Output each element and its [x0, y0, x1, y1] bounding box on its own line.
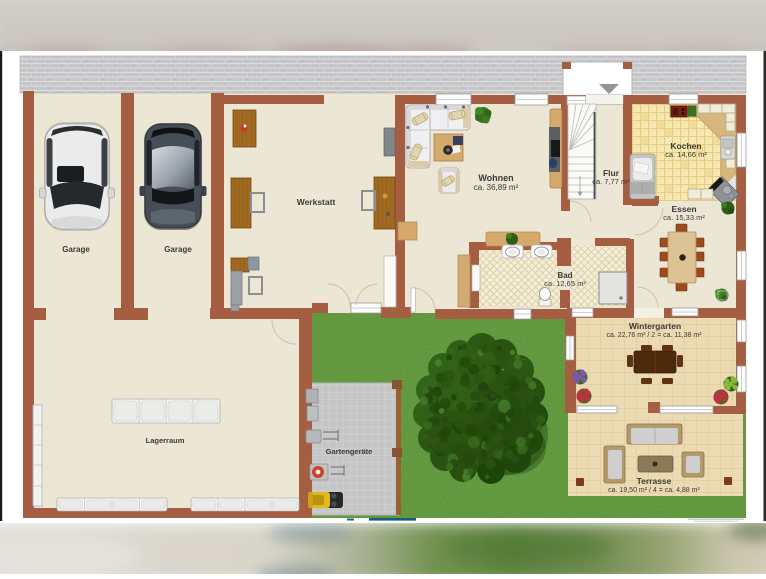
svg-text:Garage: Garage: [62, 245, 90, 254]
svg-text:ca. 22,76 m² / 2 = ca. 11,38 m: ca. 22,76 m² / 2 = ca. 11,38 m²: [607, 332, 703, 339]
svg-text:ca. 14,66 m²: ca. 14,66 m²: [665, 150, 707, 159]
svg-text:Garage: Garage: [164, 245, 192, 254]
svg-text:Wintergarten: Wintergarten: [629, 321, 681, 331]
svg-text:Lagerraum: Lagerraum: [146, 436, 185, 445]
svg-text:ca. 12,65 m²: ca. 12,65 m²: [544, 279, 586, 288]
svg-text:Gartengeräte: Gartengeräte: [326, 447, 373, 456]
svg-text:ca. 36,89 m²: ca. 36,89 m²: [474, 183, 519, 192]
svg-text:Terrasse: Terrasse: [637, 476, 672, 486]
svg-text:ca. 19,50 m² / 4 = ca. 4,88 m²: ca. 19,50 m² / 4 = ca. 4,88 m²: [608, 487, 700, 494]
svg-text:ca. 7,77 m²: ca. 7,77 m²: [592, 177, 630, 186]
svg-text:ca. 15,33 m²: ca. 15,33 m²: [663, 213, 705, 222]
svg-text:Wohnen: Wohnen: [478, 173, 513, 183]
svg-text:Werkstatt: Werkstatt: [297, 197, 336, 207]
